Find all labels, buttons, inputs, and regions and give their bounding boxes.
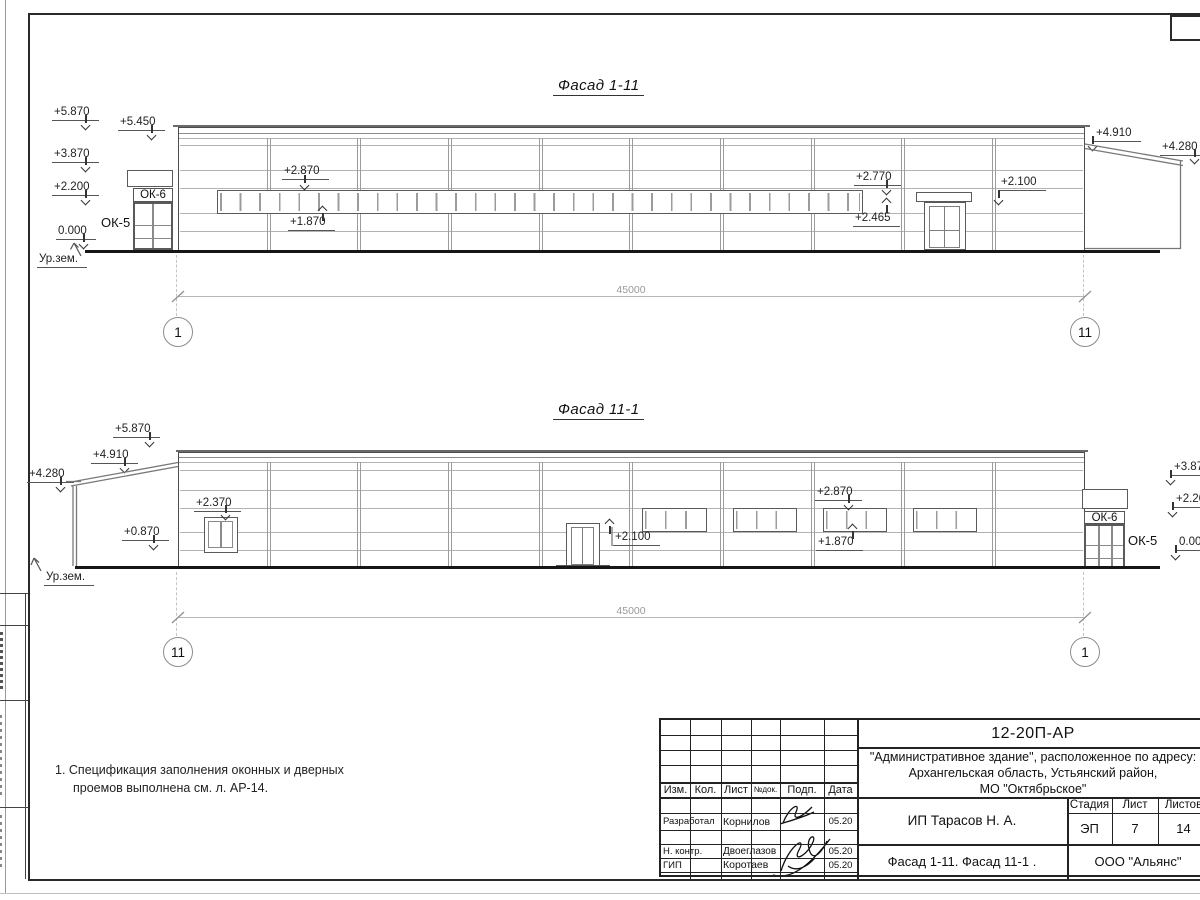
window-mullion (220, 521, 222, 548)
axis-bubble-1: 1 (1070, 637, 1100, 667)
company: ООО "Альянс" (1067, 844, 1200, 879)
axis-extension (176, 572, 177, 636)
sheet-label: Лист (1112, 797, 1158, 813)
date-gip: 05.20 (824, 858, 857, 872)
elev-arrow (119, 464, 130, 473)
elev-arrow (847, 524, 858, 533)
col-list: Лист (721, 782, 751, 797)
tb-line (661, 797, 857, 799)
porch-canopy (1082, 489, 1128, 509)
elev-mark: +2.200 (1174, 493, 1200, 508)
ground-line (75, 566, 1160, 569)
col-ndok: №док. (751, 782, 780, 797)
entrance-door (566, 523, 600, 567)
column-line (720, 462, 724, 568)
column-line (539, 462, 543, 568)
drawing-title: Фасад 1-11. Фасад 11-1 . (857, 844, 1067, 879)
sheets-value: 14 (1158, 813, 1200, 844)
window-panes (736, 511, 794, 529)
column-line (357, 462, 361, 568)
column-line (629, 462, 633, 568)
column-line (267, 462, 271, 568)
title-block: Изм. Кол. Лист №док. Подп. Дата 12-20П-А… (659, 718, 1200, 877)
sheets-label: Листов (1158, 797, 1200, 813)
axis-number: 11 (171, 645, 185, 660)
sheet-value: 7 (1112, 813, 1158, 844)
column-line (811, 462, 815, 568)
elev-mark: +4.910 (91, 449, 138, 464)
project-line-2: Архангельская область, Устьянский район, (857, 765, 1200, 781)
role-developed: Разработал (663, 813, 721, 830)
door-mullion (582, 528, 583, 564)
door-rail (1086, 545, 1123, 546)
name-ncontrol: Двоеглазов (723, 844, 780, 858)
elev-mark: +2.100 (613, 531, 660, 546)
facade-2-title: Фасад 11-1 (553, 401, 644, 420)
elev-arrow (55, 483, 66, 492)
elev-arrow (843, 501, 854, 510)
window-2pane (204, 517, 238, 553)
column-line (448, 462, 452, 568)
elev-arrow (1170, 551, 1181, 560)
tb-line (661, 735, 857, 736)
tb-line (661, 872, 857, 873)
ok5-label: ОК-5 (1128, 533, 1157, 548)
elev-mark: +5.870 (113, 423, 160, 438)
axis-bubble-11: 11 (163, 637, 193, 667)
window-3pane (642, 508, 707, 532)
date-developed: 05.20 (824, 813, 857, 830)
project-line-3: МО "Октябрьское" (857, 781, 1200, 797)
window-3pane (733, 508, 797, 532)
doc-number: 12-20П-АР (857, 720, 1200, 747)
tb-line (780, 720, 781, 879)
tb-line (661, 750, 857, 751)
tb-line (721, 720, 722, 879)
elev-mark: +2.870 (815, 486, 862, 501)
elev-mark: +0.870 (122, 526, 169, 541)
date-ncontrol: 05.20 (824, 844, 857, 858)
axis-number: 1 (1081, 645, 1089, 660)
door-mullion (1098, 526, 1100, 566)
tb-line (661, 765, 857, 766)
dimension-line (178, 617, 1085, 618)
transom-ok6: ОК-6 (1084, 511, 1125, 524)
elev-mark: +4.280 (27, 468, 74, 483)
elev-arrow (220, 511, 231, 520)
note-line-1: 1. Спецификация заполнения оконных и две… (55, 763, 344, 777)
ground-level-label: Ур.зем. (44, 571, 94, 586)
column-line (992, 462, 996, 568)
elev-mark: +1.870 (816, 536, 863, 551)
col-izm: Изм. (661, 782, 690, 797)
role-gip: ГИП (663, 858, 721, 872)
elev-arrow (604, 519, 615, 528)
window-panes (645, 511, 704, 529)
project-line-1: "Административное здание", расположенное… (857, 749, 1200, 765)
dimension-value: 45000 (600, 605, 662, 617)
door-mullion (1111, 526, 1113, 566)
door-rail (1086, 558, 1123, 559)
drawing-sheet: Фасад 1-11 ОК-6 ОК-5 (0, 0, 1200, 900)
elev-arrow (1167, 508, 1178, 517)
name-gip: Коротаев (723, 858, 780, 872)
elev-arrow (1165, 476, 1176, 485)
client: ИП Тарасов Н. А. (857, 797, 1067, 844)
elev-arrow (144, 438, 155, 447)
stage-value: ЭП (1067, 813, 1112, 844)
col-data: Дата (824, 782, 857, 797)
window-3pane (913, 508, 977, 532)
elev-mark: 0.000 (1177, 536, 1200, 551)
note-line-2: проемов выполнена см. л. АР-14. (73, 781, 268, 795)
entrance-door-ok5 (1084, 524, 1125, 568)
col-kol: Кол. (690, 782, 721, 797)
col-podp: Подп. (780, 782, 824, 797)
parapet-line (179, 457, 1084, 458)
column-line (901, 462, 905, 568)
ok6-label: ОК-6 (1092, 512, 1118, 524)
elev-arrow (148, 541, 159, 550)
tb-line (661, 830, 857, 831)
elev-mark: +3.870 (1172, 461, 1200, 476)
axis-extension (1083, 572, 1084, 636)
role-ncontrol: Н. контр. (663, 844, 721, 858)
name-developed: Корнилов (723, 813, 780, 830)
window-panes (916, 511, 974, 529)
stage-label: Стадия (1067, 797, 1112, 813)
elev-mark: +2.370 (194, 497, 241, 512)
